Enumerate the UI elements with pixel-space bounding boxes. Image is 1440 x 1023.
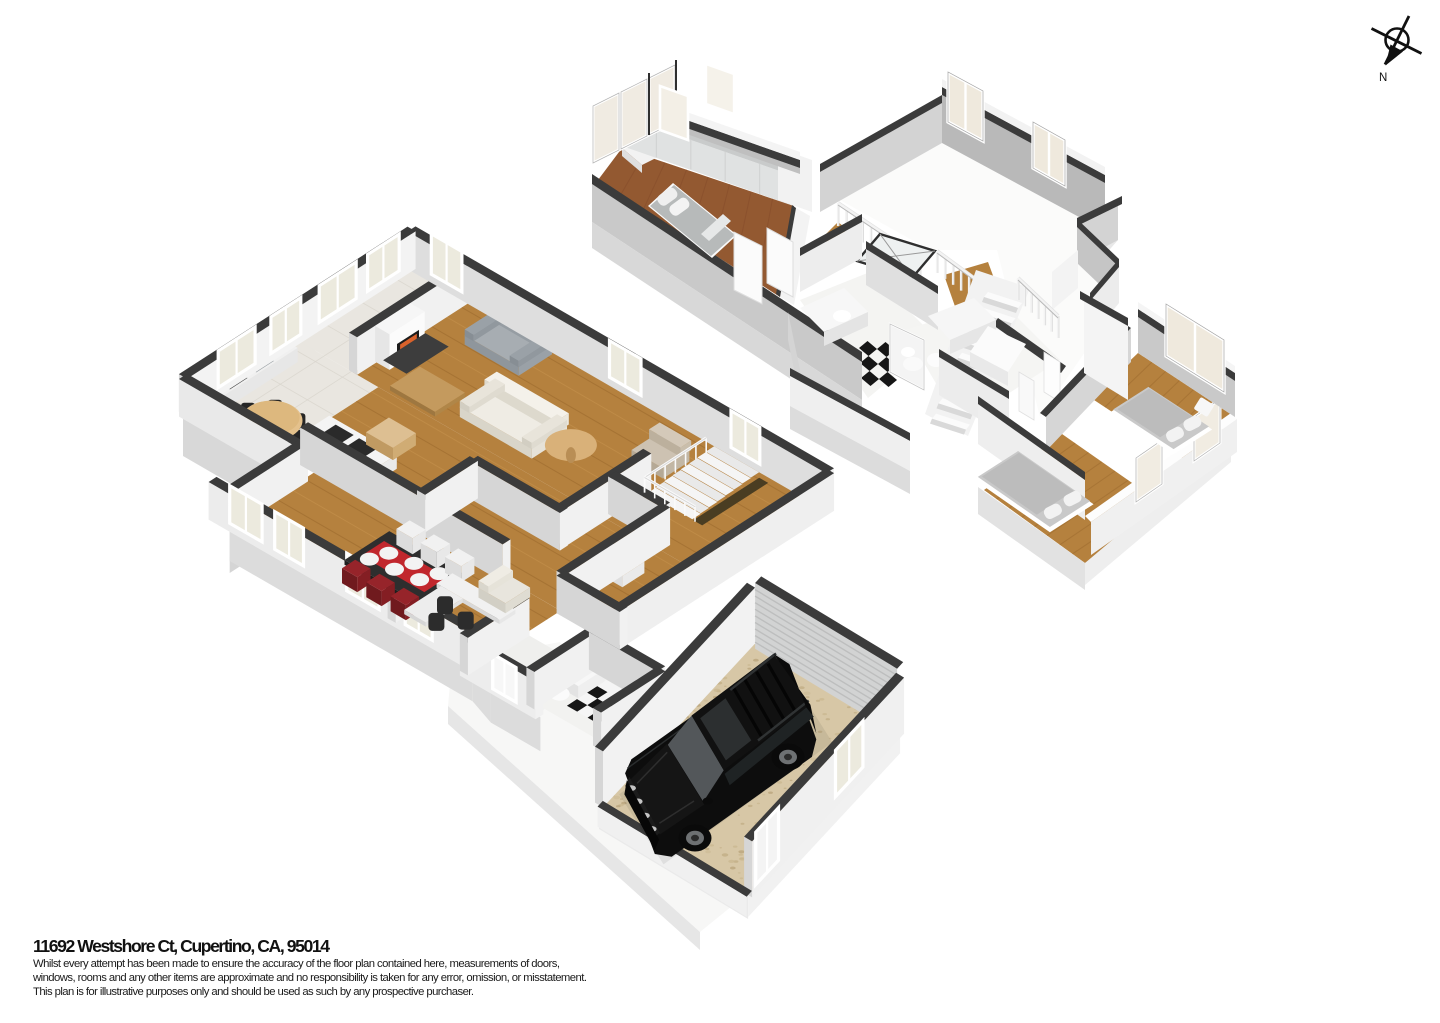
svg-text:N: N	[1379, 72, 1387, 84]
svg-text:windows, rooms and any other i: windows, rooms and any other items are a…	[32, 972, 587, 984]
svg-text:This plan is for illustrative: This plan is for illustrative purposes o…	[33, 986, 474, 998]
svg-text:11692 Westshore Ct, Cupertino,: 11692 Westshore Ct, Cupertino, CA, 95014	[33, 936, 330, 956]
svg-text:Whilst every attempt has been: Whilst every attempt has been made to en…	[33, 958, 560, 970]
